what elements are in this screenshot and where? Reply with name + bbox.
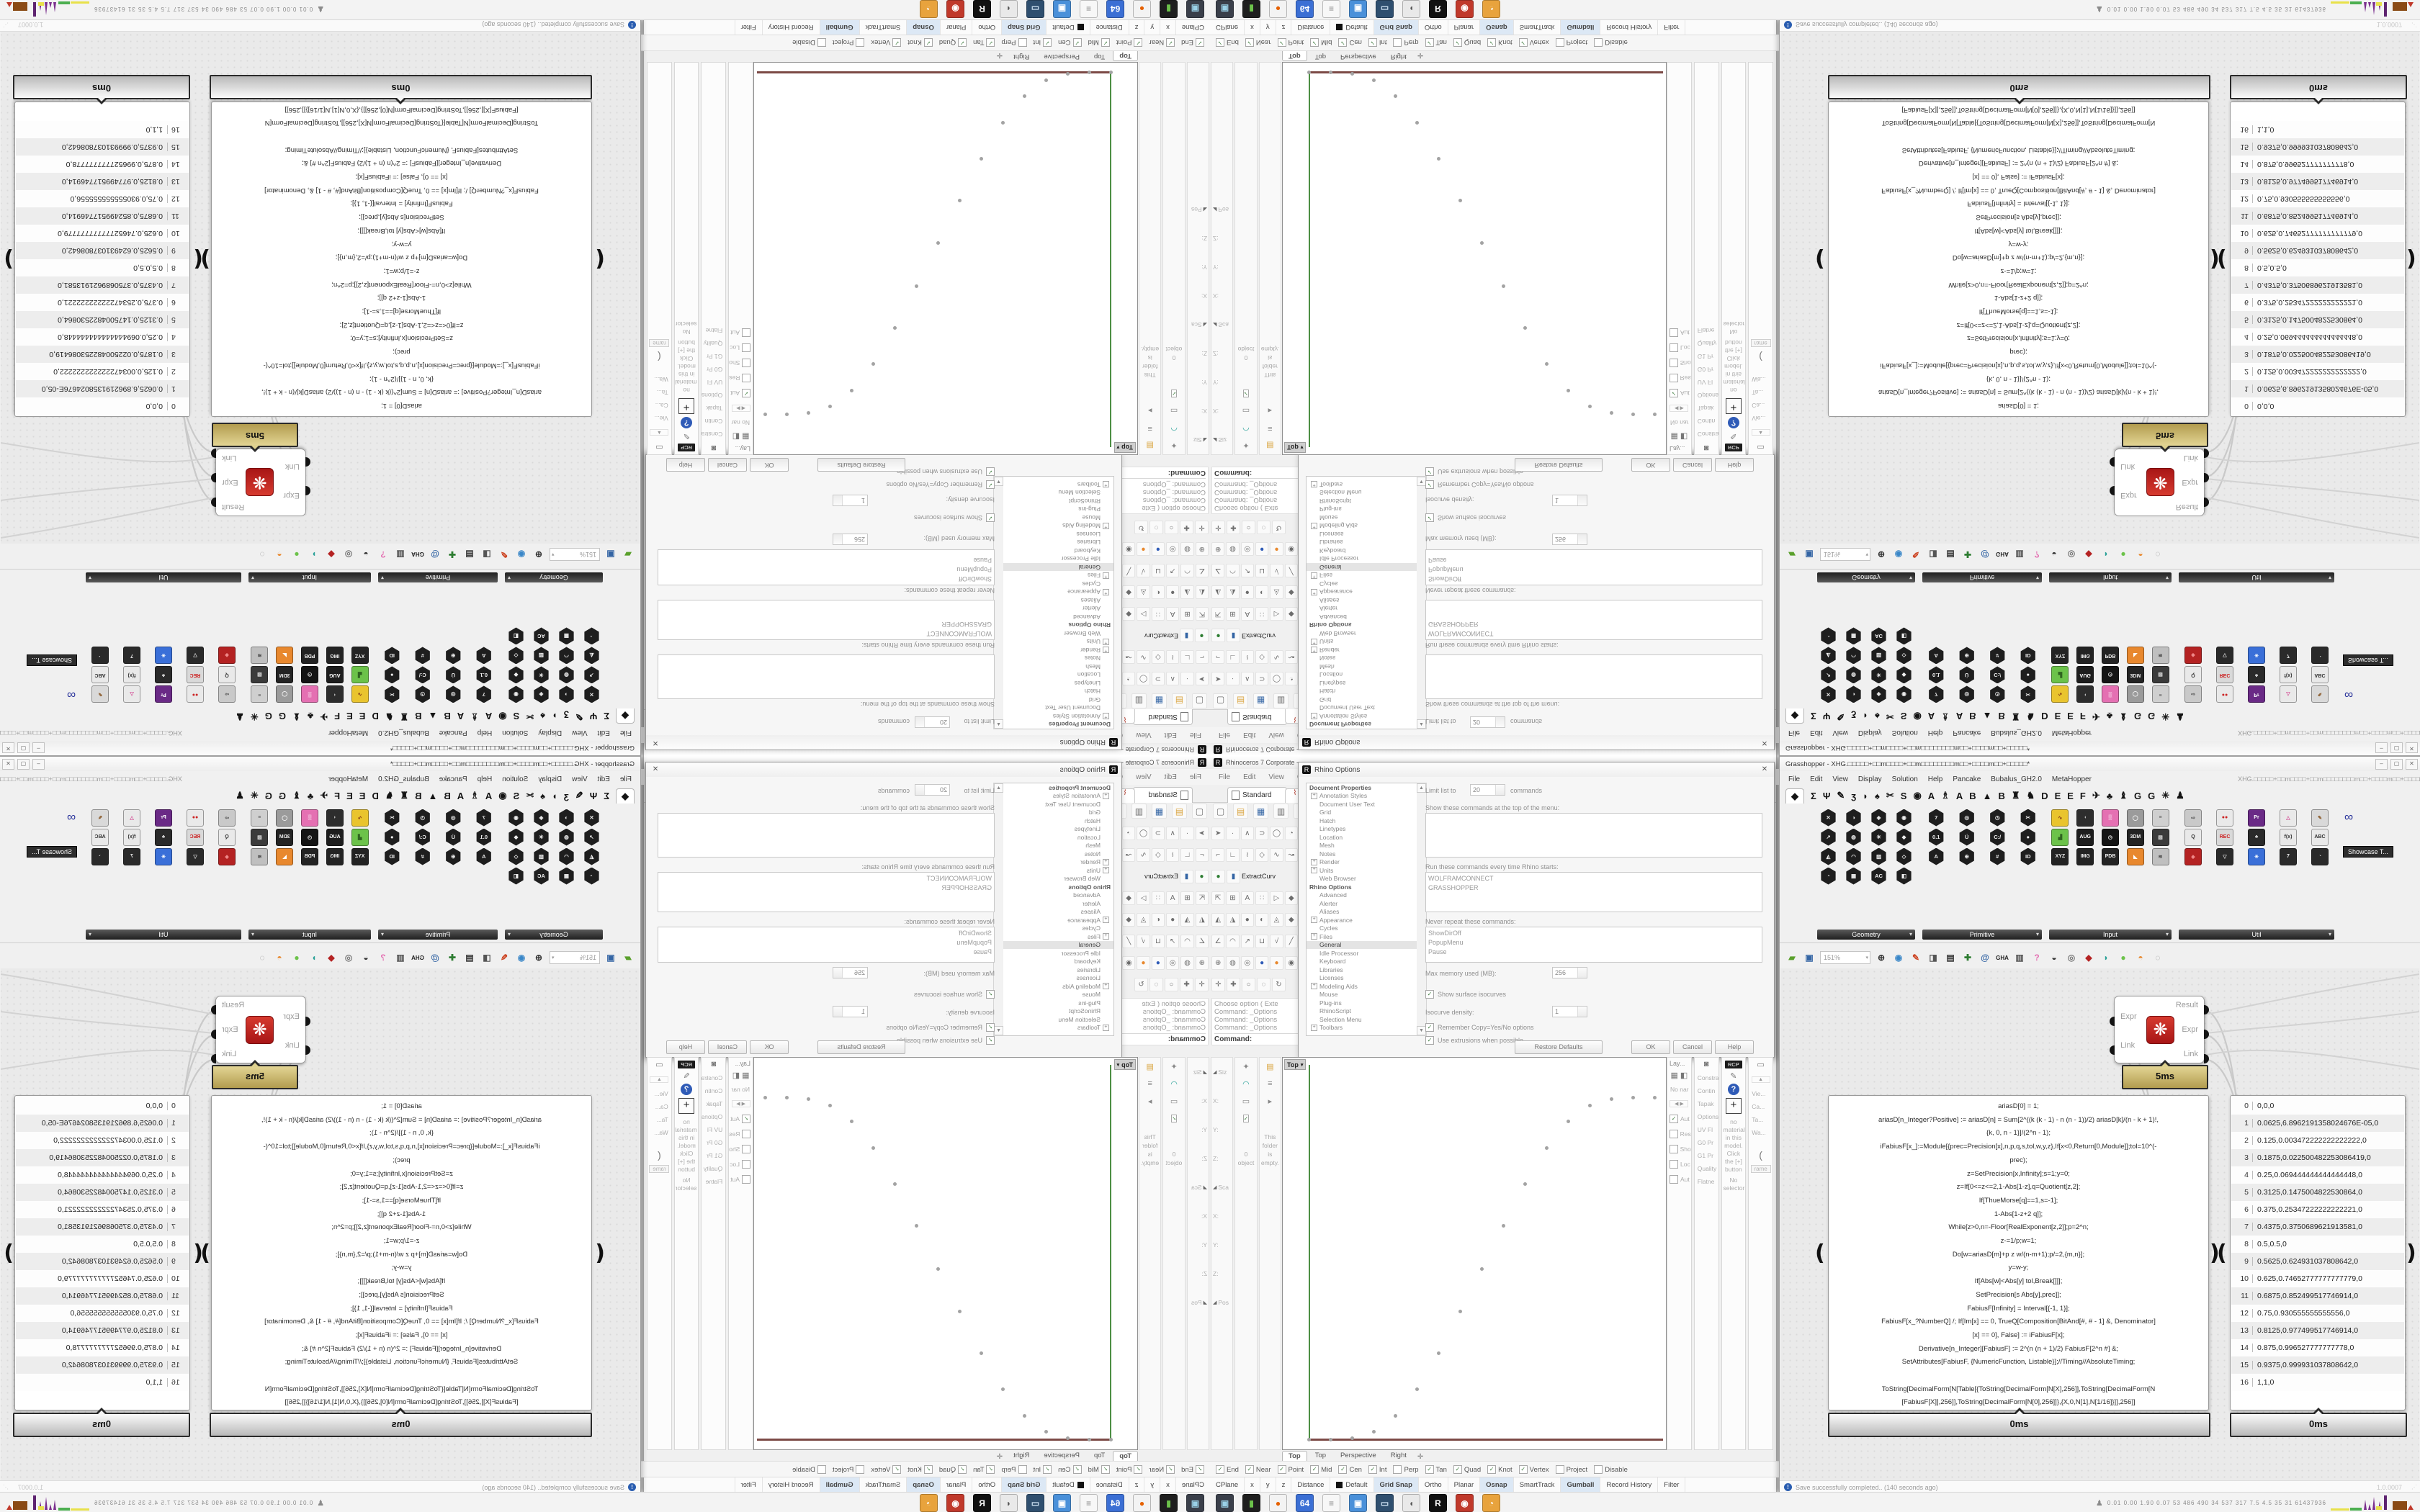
component-icon[interactable]: IMG bbox=[326, 848, 344, 865]
table-row[interactable]: 120.75,0.930555555555556,0 bbox=[2231, 1305, 2404, 1322]
component-icon[interactable]: ◖ bbox=[326, 686, 344, 703]
gh-component-tab[interactable]: ♗ bbox=[1941, 711, 1950, 722]
checkbox-icon[interactable] bbox=[1556, 38, 1564, 47]
tool-icon[interactable]: ↻ bbox=[1272, 978, 1286, 991]
component-icon[interactable]: ◷ bbox=[415, 809, 431, 827]
help-button[interactable]: Help bbox=[666, 1040, 705, 1054]
status-toggle-osnap[interactable]: Osnap bbox=[1480, 19, 1514, 35]
tool-icon[interactable]: √ bbox=[1137, 935, 1149, 948]
osnap-toggle-tan[interactable]: ✓Tan bbox=[1425, 38, 1447, 47]
gh-component-tab[interactable]: ◗ bbox=[552, 711, 557, 722]
checkbox-icon[interactable] bbox=[1556, 1465, 1564, 1474]
component-icon[interactable]: REC bbox=[187, 667, 204, 684]
tree-item-location[interactable]: Location bbox=[1003, 671, 1113, 680]
component-icon[interactable]: ◔ bbox=[584, 868, 600, 885]
viewport-canvas[interactable] bbox=[1283, 63, 1666, 454]
component-icon[interactable]: REC bbox=[187, 829, 204, 846]
palette-group-label[interactable]: Util bbox=[2179, 572, 2334, 582]
osnap-toggle-knot[interactable]: ✓Knot bbox=[1487, 38, 1512, 47]
table-row[interactable]: 161,1,0 bbox=[2231, 121, 2404, 138]
max-memory-input[interactable]: 256 bbox=[1552, 967, 1587, 978]
checkbox-icon[interactable] bbox=[1670, 343, 1678, 352]
osnap-toggle-project[interactable]: Project bbox=[1556, 38, 1588, 47]
taskbar-app-icon[interactable]: ▮ bbox=[1242, 1494, 1260, 1512]
tool-icon[interactable]: ◐ bbox=[1152, 586, 1165, 600]
toolbar-icon[interactable]: ✎ bbox=[498, 951, 511, 964]
table-row[interactable]: 100.625,0.74652777777777779,0 bbox=[2231, 225, 2404, 242]
gh-component-tab[interactable]: ♣ bbox=[2107, 711, 2113, 722]
gh-component-tab[interactable]: ✳ bbox=[2161, 790, 2169, 801]
gh-component-tab[interactable]: ♟ bbox=[236, 790, 244, 801]
cancel-button[interactable]: Cancel bbox=[1673, 458, 1712, 472]
limit-list-input[interactable]: 20 bbox=[1470, 784, 1505, 796]
checkbox-icon[interactable]: ✓ bbox=[742, 1115, 750, 1123]
gh-component-tab[interactable]: ◆ bbox=[1785, 788, 1804, 804]
tree-item-units[interactable]: +Units bbox=[1003, 866, 1113, 875]
component-icon[interactable]: 7 bbox=[2280, 647, 2297, 665]
dome-icon[interactable]: ◠ bbox=[1240, 421, 1252, 433]
tool-icon[interactable]: ◔ bbox=[1122, 672, 1135, 686]
checkbox-icon[interactable]: ✓ bbox=[1166, 1465, 1175, 1474]
save-file-icon[interactable]: ▣ bbox=[604, 548, 617, 561]
component-icon[interactable]: REC bbox=[2216, 829, 2233, 846]
status-cell-default[interactable]: Default bbox=[1047, 1477, 1090, 1493]
tree-item-document-user-text[interactable]: Document User Text bbox=[1003, 704, 1113, 713]
component-icon[interactable]: 3DM bbox=[2127, 667, 2144, 684]
command-area[interactable]: Choose option ( ExteCommand: _OptionsCom… bbox=[1211, 467, 1299, 514]
layers-panel-header[interactable]: Lay... bbox=[1667, 444, 1691, 454]
input-port[interactable] bbox=[2110, 486, 2115, 495]
gh-component-tab[interactable]: E bbox=[359, 711, 366, 722]
tool-icon[interactable]: ⌐ bbox=[1211, 651, 1224, 665]
taskbar-app-icon[interactable]: R bbox=[973, 1494, 991, 1512]
status-toggle-record-history[interactable]: Record History bbox=[762, 1477, 820, 1493]
gh-component-tab[interactable]: ♣ bbox=[308, 791, 314, 801]
osnap-toggle-point[interactable]: ✓Point bbox=[1116, 1465, 1143, 1474]
gh-component-tab[interactable]: G bbox=[2134, 791, 2141, 801]
gh-component-tab[interactable]: ✎ bbox=[1837, 711, 1845, 722]
checkbox-icon[interactable]: ✓ bbox=[892, 1465, 901, 1474]
menu-item-edit[interactable]: Edit bbox=[1810, 729, 1822, 737]
gh-component-tab[interactable]: A bbox=[485, 711, 492, 722]
component-icon[interactable]: △ bbox=[2280, 686, 2297, 703]
tool-icon[interactable]: A bbox=[1241, 608, 1254, 621]
table-row[interactable]: 80.5,0.5,0 bbox=[16, 259, 189, 276]
restore-defaults-button[interactable]: Restore Defaults bbox=[817, 1040, 905, 1054]
checkbox-icon[interactable] bbox=[1018, 38, 1027, 47]
list-icon[interactable]: ≡ bbox=[1144, 1079, 1157, 1091]
tool-icon[interactable]: ▷ bbox=[1270, 891, 1283, 905]
tool-icon[interactable]: ● bbox=[1241, 586, 1254, 600]
open-file-icon[interactable]: ▰ bbox=[622, 951, 635, 964]
gh-component-tab[interactable]: G bbox=[2148, 711, 2155, 722]
table-row[interactable]: 161,1,0 bbox=[16, 1374, 189, 1391]
gh-component-tab[interactable]: Σ bbox=[1811, 791, 1816, 801]
viewport-tab-top-0[interactable]: Top bbox=[1113, 51, 1138, 61]
component-icon[interactable]: ABC bbox=[2311, 667, 2329, 684]
tool-icon[interactable]: ▦ bbox=[1152, 804, 1167, 819]
name-field[interactable]: rame bbox=[649, 339, 669, 347]
tool-icon[interactable]: ◔ bbox=[1285, 672, 1298, 686]
menu-item-bubalus-gh2-0[interactable]: Bubalus_GH2.0 bbox=[378, 729, 429, 737]
osnap-toggle-mid[interactable]: ✓Mid bbox=[1310, 1465, 1332, 1474]
tool-icon[interactable]: ◬ bbox=[1270, 913, 1283, 927]
component-icon[interactable]: ▒ bbox=[301, 809, 318, 827]
gh-component-tab[interactable]: E bbox=[346, 711, 353, 722]
table-row[interactable]: 50.3125,0.1475004822530864,0 bbox=[2231, 1184, 2404, 1201]
tool-icon[interactable]: ● bbox=[1211, 870, 1225, 883]
tool-icon[interactable]: ◌ bbox=[1257, 521, 1270, 535]
gh-component-tab[interactable]: Ψ bbox=[590, 791, 598, 801]
help-icon[interactable]: ? bbox=[681, 1084, 692, 1095]
component-icon[interactable]: Ü bbox=[1959, 829, 1975, 846]
tree-item-licenses[interactable]: Licenses bbox=[1307, 530, 1417, 539]
toolbar-icon[interactable]: ◆ bbox=[325, 548, 338, 561]
scroll-down-icon[interactable]: ▼ bbox=[994, 1026, 1003, 1035]
panel-input-grip[interactable]: ( bbox=[193, 246, 203, 271]
toolbar-icon[interactable]: ◗ bbox=[2099, 951, 2112, 964]
tree-item-selection-menu[interactable]: Selection Menu bbox=[1307, 1015, 1417, 1024]
tree-item-aliases[interactable]: Aliases bbox=[1307, 596, 1417, 605]
tree-item-general[interactable]: General bbox=[1307, 563, 1417, 572]
gear-icon[interactable]: ✦ bbox=[1240, 438, 1252, 450]
component-icon[interactable]: IMG bbox=[2076, 647, 2094, 665]
gh-component-tab[interactable]: ◉ bbox=[498, 790, 506, 801]
component-icon[interactable]: ◉ bbox=[508, 686, 524, 703]
gh-component-tab[interactable]: F bbox=[334, 791, 340, 801]
pager[interactable]: ◀ ▶ bbox=[732, 1100, 750, 1107]
tree-item-toolbars[interactable]: +Toolbars bbox=[1307, 1024, 1417, 1032]
toolbar-icon[interactable]: GHA bbox=[411, 548, 424, 561]
tree-item-keyboard[interactable]: Keyboard bbox=[1307, 546, 1417, 555]
component-icon[interactable]: ◯ bbox=[2127, 809, 2144, 827]
toolbar-icon[interactable]: ◓ bbox=[273, 951, 286, 964]
tree-item-linetypes[interactable]: Linetypes bbox=[1003, 825, 1113, 834]
tree-item-document-user-text[interactable]: Document User Text bbox=[1003, 800, 1113, 809]
toolbar-icon[interactable]: ◓ bbox=[2134, 548, 2147, 561]
checkbox-icon[interactable]: ✓ bbox=[1338, 38, 1347, 47]
osnap-toggle-int[interactable]: ✓Int bbox=[1368, 1465, 1387, 1474]
resize-grip[interactable]: ⋰ bbox=[2, 22, 9, 28]
gh-component-tab[interactable]: ♗ bbox=[470, 790, 479, 801]
tool-icon[interactable]: ◇ bbox=[1152, 848, 1165, 862]
gh-component-tab[interactable]: ʒ bbox=[1851, 711, 1856, 722]
ok-button[interactable]: OK bbox=[750, 458, 789, 472]
tool-icon[interactable]: ➤ bbox=[1211, 672, 1224, 686]
maximize-icon[interactable]: ▢ bbox=[17, 742, 30, 753]
palette-group-label[interactable]: Input bbox=[248, 930, 371, 940]
scroll-down-icon[interactable]: ▼ bbox=[994, 477, 1003, 486]
command-prompt[interactable]: Command: bbox=[1214, 1033, 1299, 1043]
component-icon[interactable]: IMG bbox=[326, 647, 344, 665]
pencil-icon[interactable]: ✎ bbox=[1722, 431, 1746, 441]
toolbar-icon[interactable]: ◆ bbox=[325, 951, 338, 964]
checkbox-icon[interactable] bbox=[742, 328, 750, 337]
osnap-toggle-int[interactable]: ✓Int bbox=[1034, 38, 1052, 47]
menu-item-file[interactable]: File bbox=[1219, 732, 1230, 739]
table-row[interactable]: 100.625,0.74652777777777779,0 bbox=[2231, 1270, 2404, 1287]
checkbox-icon[interactable]: ✓ bbox=[1278, 1465, 1286, 1474]
tool-icon[interactable]: ▦ bbox=[1152, 693, 1167, 708]
component-icon[interactable]: REC bbox=[2216, 667, 2233, 684]
tool-icon[interactable]: ◯ bbox=[1137, 672, 1149, 686]
pencil-icon[interactable]: ✎ bbox=[675, 1071, 699, 1081]
checkbox-icon[interactable]: ✓ bbox=[1519, 38, 1528, 47]
component-icon[interactable]: ✎ bbox=[91, 809, 109, 827]
checkbox-row[interactable]: ✓Aut bbox=[729, 1115, 750, 1123]
table-row[interactable]: 00,0,0 bbox=[16, 397, 189, 415]
restore-defaults-button[interactable]: Restore Defaults bbox=[1515, 458, 1603, 472]
taskbar-app-icon[interactable]: 64 bbox=[1296, 1494, 1314, 1512]
open-file-icon[interactable]: ▰ bbox=[1785, 951, 1798, 964]
expander-icon[interactable]: + bbox=[1311, 793, 1317, 799]
scroll-up-icon[interactable]: ▲ bbox=[1752, 429, 1770, 436]
gh-component-tab[interactable]: ♞ bbox=[2027, 790, 2035, 801]
component-icon[interactable]: A bbox=[476, 848, 492, 865]
tree-item-web-browser[interactable]: Web Browser bbox=[1307, 629, 1417, 638]
tool-icon[interactable]: ◎ bbox=[1241, 543, 1254, 557]
tree-item-plug-ins[interactable]: Plug-ins bbox=[1307, 999, 1417, 1007]
gh-component-tab[interactable]: ◆ bbox=[616, 709, 635, 724]
tool-icon[interactable]: ◬ bbox=[1137, 586, 1149, 600]
tree-item-aliases[interactable]: Aliases bbox=[1003, 908, 1113, 917]
component-icon[interactable]: ✳ bbox=[1871, 667, 1887, 684]
gear-icon[interactable]: ✦ bbox=[1168, 1062, 1180, 1074]
tool-icon[interactable]: ∿ bbox=[1270, 651, 1283, 665]
panel-input-grip[interactable]: ( bbox=[595, 246, 605, 271]
checkbox-icon[interactable] bbox=[742, 359, 750, 367]
table-row[interactable]: 40.25,0.069444444444444448,0 bbox=[16, 328, 189, 346]
resize-grip[interactable]: ⋰ bbox=[2411, 22, 2418, 28]
component-icon[interactable]: ⇨ bbox=[218, 809, 236, 827]
toolbar-icon[interactable]: @ bbox=[1978, 951, 1991, 964]
taskbar-app-icon[interactable]: ◖ bbox=[1000, 0, 1018, 18]
zoom-level-select[interactable]: 151% bbox=[550, 548, 600, 561]
taskbar-app-icon[interactable]: ▣ bbox=[1186, 0, 1204, 18]
gh-component-tab[interactable]: Ψ bbox=[1823, 711, 1831, 722]
tool-icon[interactable]: ● bbox=[1166, 586, 1179, 600]
table-row[interactable]: 110.6875,0.852499517746914,0 bbox=[16, 207, 189, 225]
tree-item-general[interactable]: General bbox=[1307, 941, 1417, 950]
menu-item-metahopper[interactable]: MetaHopper bbox=[328, 775, 368, 783]
close-icon[interactable]: ✕ bbox=[2406, 759, 2418, 770]
expander-icon[interactable]: + bbox=[1311, 523, 1317, 529]
panel-input-grip[interactable]: ( bbox=[1815, 1241, 1825, 1266]
toolbar-icon[interactable]: GHA bbox=[1996, 951, 2009, 964]
component-icon[interactable]: ✂ bbox=[2020, 809, 2036, 827]
tree-item-linetypes[interactable]: Linetypes bbox=[1003, 679, 1113, 688]
component-icon[interactable]: ⊕ bbox=[1959, 848, 1975, 865]
tree-item-units[interactable]: +Units bbox=[1307, 866, 1417, 875]
tree-item-grid[interactable]: Grid bbox=[1003, 809, 1113, 817]
osnap-toggle-point[interactable]: ✓Point bbox=[1116, 38, 1143, 47]
tool-icon[interactable]: ⊔ bbox=[1152, 564, 1165, 578]
component-icon[interactable]: Q bbox=[218, 667, 236, 684]
component-icon[interactable]: AC bbox=[1871, 628, 1887, 645]
taskbar-app-icon[interactable]: ● bbox=[1133, 1494, 1151, 1512]
tree-item-document-properties[interactable]: Document Properties bbox=[1003, 783, 1113, 792]
status-cell-y[interactable]: y bbox=[1144, 19, 1160, 35]
tree-item-modeling-aids[interactable]: +Modeling Aids bbox=[1307, 982, 1417, 991]
monitor-icon[interactable]: ▭ bbox=[1168, 404, 1180, 415]
tree-item-rhinoscript[interactable]: RhinoScript bbox=[1307, 497, 1417, 505]
component-icon[interactable]: ✳ bbox=[1871, 829, 1887, 846]
status-cell-distance[interactable]: Distance bbox=[1291, 19, 1330, 35]
gh-component-tab[interactable]: ◉ bbox=[1913, 790, 1921, 801]
minimize-icon[interactable]: – bbox=[32, 742, 45, 753]
command-prompt[interactable]: Command: bbox=[1214, 469, 1299, 479]
max-memory-input[interactable]: 256 bbox=[1552, 534, 1587, 545]
toolbar-icon[interactable]: ? bbox=[377, 548, 390, 561]
menu-item-edit[interactable]: Edit bbox=[1243, 732, 1255, 739]
osnap-toggle-vertex[interactable]: ✓Vertex bbox=[871, 38, 901, 47]
gh-component-tab[interactable]: ▲ bbox=[429, 711, 438, 722]
component-icon[interactable]: 3DM bbox=[2127, 829, 2144, 846]
component-icon[interactable]: △ bbox=[2280, 809, 2297, 827]
checkbox-icon[interactable] bbox=[1670, 1130, 1678, 1138]
gh-component-tab[interactable]: A bbox=[1956, 791, 1963, 801]
taskbar-app-icon[interactable]: 64 bbox=[1106, 0, 1124, 18]
component-icon[interactable]: ◍ bbox=[1846, 667, 1862, 684]
menu-item-view[interactable]: View bbox=[572, 775, 588, 783]
tree-item-mesh[interactable]: Mesh bbox=[1003, 842, 1113, 850]
osnap-toggle-int[interactable]: ✓Int bbox=[1034, 1465, 1052, 1474]
component-icon[interactable]: ◎ bbox=[445, 809, 461, 827]
checkbox-icon[interactable] bbox=[742, 374, 750, 382]
checkbox-icon[interactable]: ✓ bbox=[1043, 38, 1052, 47]
status-toggle-osnap[interactable]: Osnap bbox=[906, 19, 940, 35]
status-toggle-filter[interactable]: Filter bbox=[735, 19, 762, 35]
tool-icon[interactable]: ◭ bbox=[1196, 913, 1209, 927]
osnap-toggle-mid[interactable]: ✓Mid bbox=[1088, 38, 1110, 47]
toolbar-icon[interactable]: ◎ bbox=[2065, 548, 2078, 561]
maximize-icon[interactable]: ▢ bbox=[17, 759, 30, 770]
rcp-icon[interactable]: RCP bbox=[1725, 1061, 1742, 1068]
gh-component-tab[interactable]: ◗ bbox=[1863, 791, 1868, 801]
save-file-icon[interactable]: ▣ bbox=[604, 951, 617, 964]
component-icon[interactable]: ID bbox=[2020, 647, 2036, 665]
toolbar-icon[interactable]: ◒ bbox=[2048, 951, 2061, 964]
help-button[interactable]: Help bbox=[1715, 458, 1754, 472]
resize-grip[interactable]: ⋰ bbox=[2411, 1484, 2418, 1490]
add-viewport-icon[interactable]: ✛ bbox=[1415, 1453, 1423, 1461]
osnap-toggle-near[interactable]: ✓Near bbox=[1149, 38, 1175, 47]
ok-button[interactable]: OK bbox=[1631, 1040, 1670, 1054]
menu-item-file[interactable]: File bbox=[1219, 773, 1230, 781]
component-icon[interactable]: C:/ bbox=[415, 667, 431, 684]
checkbox-icon[interactable]: ✓ bbox=[1134, 1465, 1143, 1474]
tool-icon[interactable]: ∧ bbox=[1241, 827, 1254, 840]
checkbox-icon[interactable]: ✓ bbox=[1216, 1465, 1224, 1474]
expander-icon[interactable]: + bbox=[1311, 867, 1317, 873]
checkbox-icon[interactable] bbox=[742, 1160, 750, 1169]
viewport-tab-top-0[interactable]: Top bbox=[1282, 1451, 1307, 1461]
gh-component-tab[interactable]: ♜ bbox=[2012, 711, 2020, 722]
tool-icon[interactable]: ➤ bbox=[1196, 827, 1209, 840]
maximize-icon[interactable]: ▢ bbox=[2390, 742, 2403, 753]
taskbar-app-icon[interactable]: ▣ bbox=[1053, 1494, 1071, 1512]
status-toggle-record-history[interactable]: Record History bbox=[1600, 19, 1658, 35]
gh-component-tab[interactable]: ▲ bbox=[1983, 791, 1992, 801]
toolbar-icon[interactable]: ▤ bbox=[1944, 548, 1957, 561]
component-icon[interactable]: ✳ bbox=[155, 647, 172, 665]
expander-icon[interactable]: + bbox=[1103, 917, 1109, 923]
tree-item-notes[interactable]: Notes bbox=[1307, 654, 1417, 663]
component-icon[interactable]: ◭ bbox=[584, 647, 600, 665]
status-cell-y[interactable]: y bbox=[1260, 1477, 1276, 1493]
gh-component-tab[interactable]: ◗ bbox=[552, 791, 557, 801]
cancel-button[interactable]: Cancel bbox=[708, 458, 747, 472]
checkbox-icon[interactable]: ✓ bbox=[1425, 990, 1434, 999]
palette-group-label[interactable]: Input bbox=[2049, 572, 2172, 582]
tree-item-idle-processor[interactable]: Idle Processor bbox=[1307, 949, 1417, 958]
gh-component-tab[interactable]: D bbox=[372, 791, 378, 801]
component-icon[interactable]: ∿ bbox=[351, 809, 369, 827]
command-prompt[interactable]: Command: bbox=[1121, 1033, 1206, 1043]
expander-icon[interactable]: + bbox=[1103, 572, 1109, 579]
status-toggle-grid-snap[interactable]: Grid Snap bbox=[1374, 1477, 1419, 1493]
table-row[interactable]: 130.8125,0.977499517746914,0 bbox=[16, 173, 189, 190]
taskbar-app-icon[interactable]: ▮ bbox=[1160, 0, 1178, 18]
limit-list-input[interactable]: 20 bbox=[915, 784, 950, 796]
table-row[interactable]: 161,1,0 bbox=[2231, 1374, 2404, 1391]
command-area[interactable]: Choose option ( ExteCommand: _OptionsCom… bbox=[1211, 998, 1299, 1045]
expander-icon[interactable]: + bbox=[1103, 867, 1109, 873]
taskbar-app-icon[interactable]: ◉ bbox=[946, 0, 964, 18]
panel-output-grip[interactable]: ) bbox=[4, 246, 14, 271]
checkbox-row[interactable]: ✓Aut bbox=[1670, 389, 1691, 397]
code-panel[interactable]: ariasD[0] = 1;ariasD[n_Integer?Positive]… bbox=[1828, 1095, 2209, 1410]
checkbox-row[interactable]: Sho bbox=[1670, 359, 1691, 367]
tree-item-grid[interactable]: Grid bbox=[1307, 696, 1417, 704]
table-row[interactable]: 90.5625,0.624931037808642,0 bbox=[2231, 1253, 2404, 1270]
component-icon[interactable]: ◈ bbox=[1871, 809, 1887, 827]
gh-component-tab[interactable]: ◆ bbox=[1785, 709, 1804, 724]
menu-item-display[interactable]: Display bbox=[538, 775, 562, 783]
scroll-up-icon[interactable]: ▲ bbox=[1752, 1076, 1770, 1083]
tool-icon[interactable]: ↻ bbox=[1134, 521, 1148, 535]
tree-item-cycles[interactable]: Cycles bbox=[1307, 580, 1417, 588]
status-toggle-record-history[interactable]: Record History bbox=[762, 19, 820, 35]
component-icon[interactable]: ◑ bbox=[1846, 809, 1862, 827]
list-icon[interactable]: ≡ bbox=[1263, 421, 1276, 433]
run-commands-input[interactable]: WOLFRAMCONNECT GRASSHOPPER bbox=[658, 872, 995, 912]
menu-item-edit[interactable]: Edit bbox=[598, 775, 610, 783]
menu-item-solution[interactable]: Solution bbox=[1892, 729, 1918, 737]
tool-icon[interactable]: ▢ bbox=[1213, 804, 1228, 819]
component-icon[interactable]: ●● bbox=[187, 686, 204, 703]
tree-item-document-properties[interactable]: Document Properties bbox=[1307, 783, 1417, 792]
tree-item-render[interactable]: +Render bbox=[1307, 858, 1417, 867]
menu-item-metahopper[interactable]: MetaHopper bbox=[328, 729, 368, 737]
component-icon[interactable]: ◧ bbox=[1896, 868, 1912, 885]
expander-icon[interactable]: + bbox=[1103, 713, 1109, 719]
component-icon[interactable]: ◠ bbox=[559, 647, 575, 665]
gh-component-tab[interactable]: ♟ bbox=[2176, 711, 2184, 722]
add-viewport-icon[interactable]: ✛ bbox=[997, 51, 1005, 59]
checkbox-icon[interactable]: ✓ bbox=[1338, 1465, 1347, 1474]
status-toggle-planar[interactable]: Planar bbox=[940, 1477, 972, 1493]
status-cell-z[interactable]: z bbox=[1276, 19, 1292, 35]
dialog-titlebar[interactable]: R Rhino Options ✕ bbox=[1299, 735, 1774, 750]
add-viewport-icon[interactable]: ✛ bbox=[997, 1453, 1005, 1461]
gh-component-tab[interactable]: A bbox=[457, 791, 464, 801]
status-toggle-grid-snap[interactable]: Grid Snap bbox=[1374, 19, 1419, 35]
toolbar-icon[interactable]: ◨ bbox=[1927, 951, 1940, 964]
gh-component-tab[interactable]: Σ bbox=[604, 711, 609, 722]
component-icon[interactable]: ◉ bbox=[1896, 809, 1912, 827]
component-icon[interactable]: ⇨ bbox=[218, 686, 236, 703]
